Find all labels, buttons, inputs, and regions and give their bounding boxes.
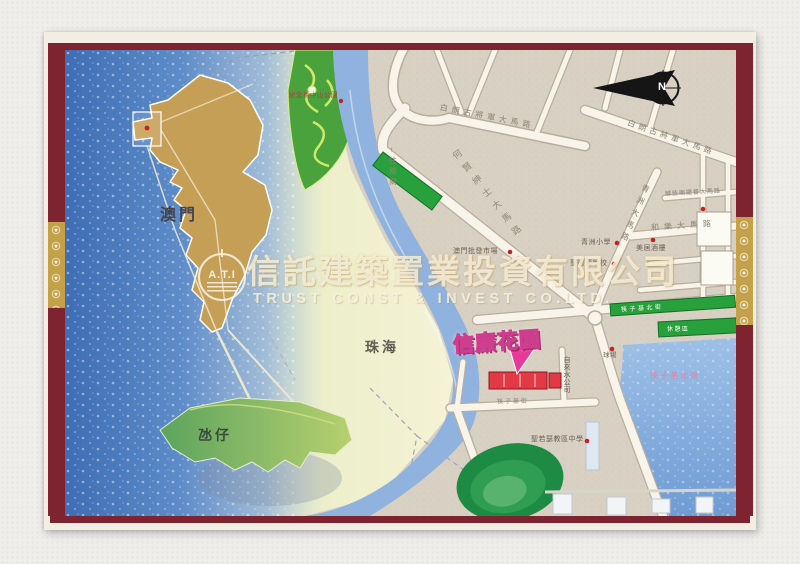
poi-sun-yat-sen-park: 紀念孫中山公園 [289, 93, 338, 100]
bottom-border-bar [50, 516, 750, 523]
poi-st-joseph-school: 聖若瑟教區中學 [531, 436, 584, 443]
poi-mei-koi-restaurant: 美居酒樓 [636, 245, 666, 252]
right-border-strip [736, 43, 753, 516]
poi-wholesale-market: 澳門批發市場 [453, 248, 498, 255]
road-label-to-border-gate: ←往關閘 [389, 146, 397, 188]
poi-santa-teresa-school: 聖德蘭學校 [570, 260, 608, 267]
top-border-bar [50, 43, 750, 50]
road-label-fai-chi-kei: 筷子基街 [497, 398, 529, 405]
zhuhai-label: 珠海 [365, 340, 399, 354]
compass-north-label: N [658, 82, 666, 93]
left-border-strip [48, 43, 65, 516]
gold-swirl-pattern [48, 222, 65, 308]
poi-leisure-area: 休憩區 [667, 327, 690, 333]
poi-water-company: 自來水公司 [563, 356, 570, 390]
location-map: 澳門 珠海 氹仔 白朗古將軍大馬路 白朗古將軍大馬路 ←往關閘 何賢紳士大馬路 … [65, 50, 736, 516]
taipa-label: 氹仔 [198, 428, 232, 442]
poi-bay-label: 筷子基北灣 [650, 372, 700, 380]
gold-swirl-pattern [736, 217, 753, 325]
macau-label: 澳門 [160, 208, 198, 224]
brochure-page: 澳門 珠海 氹仔 白朗古將軍大馬路 白朗古將軍大馬路 ←往關閘 何賢紳士大馬路 … [44, 32, 756, 530]
highlight-building [489, 372, 547, 389]
poi-ilha-verde-school: 青洲小學 [581, 239, 611, 246]
poi-sports-court: 球場 [603, 353, 617, 360]
